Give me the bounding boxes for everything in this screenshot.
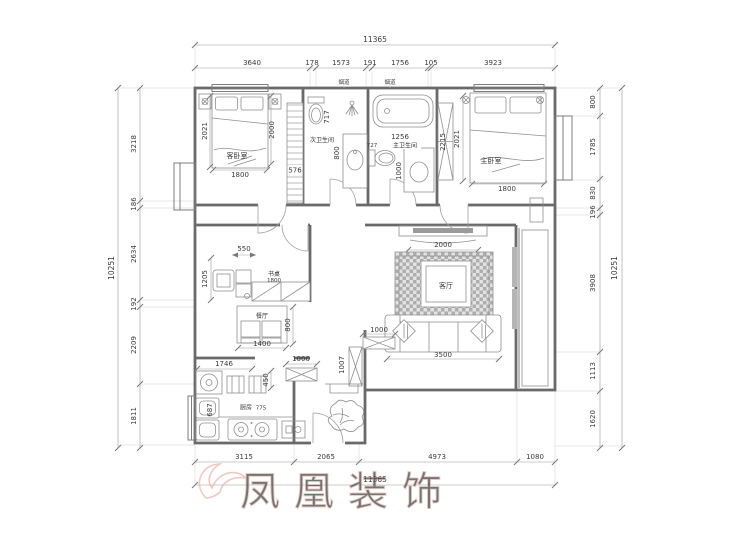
dim-top-total: 11365 [363,35,387,44]
tv [413,228,473,233]
watermark-swirl [199,464,246,498]
washing-machine [196,371,222,394]
stool [227,376,244,393]
dim-top-seg-2: 1573 [332,59,350,67]
dim-shoe-cabinet: 1000 [292,355,310,363]
dim-dining-d: 800 [284,318,292,331]
dim-desk-len: 1800 [267,278,281,284]
dim-top-seg-5: 105 [424,59,437,67]
desk-label: 书桌 [268,270,280,278]
toilet-tank [308,97,324,103]
dim-bottom-seg-1: 2065 [317,453,335,461]
desk-chair [213,270,234,291]
room-label-guest-bedroom: 客卧室 [227,151,248,160]
room-label-dining: 餐厅 [256,312,268,320]
dim-bath1-width: 1256 [391,133,409,141]
bay-window-left [174,163,195,210]
dim-left-seg-2: 2634 [130,245,138,263]
dim-top-seg-1: 178 [305,59,318,67]
basin-counter [404,148,434,192]
flues: 烟道 烟道 [338,78,396,88]
dim-right-seg-1: 1785 [589,138,597,156]
master-bathroom: 1256 主卫生间 727 1000 [367,95,434,192]
dim-right-seg-5: 1113 [589,362,597,380]
plant-icon [328,400,363,431]
dim-desk-col: 550 [237,245,250,253]
dim-bath2-basin: 800 [333,146,341,159]
flue-label-left: 烟道 [338,78,350,86]
dim-master-bed-len: 2021 [453,130,461,148]
dim-bottom-seg-3: 1080 [526,453,544,461]
dim-right-seg-2: 830 [589,186,597,199]
room-label-second-bathroom: 次卫生间 [310,136,334,144]
guest-bedroom: 2021 2000 1800 576 客卧室 [199,93,303,203]
dim-right-total: 10251 [610,256,619,280]
dim-desk-depth: 1205 [201,270,209,288]
dim-bath1-basin: 1000 [395,162,403,180]
dim-bath1-toilet: 727 [367,143,378,149]
dim-top-seg-0: 3640 [243,59,261,67]
dim-left-seg-3: 192 [130,297,138,310]
shower-icon [350,101,354,105]
dim-guest-wardrobe: 576 [288,167,302,175]
dim-top-seg-6: 3923 [484,59,502,67]
dim-kitchen-sink: 687 [206,403,214,416]
dim-left-seg-1: 186 [130,197,138,211]
dim-hall-cabinet: 1007 [338,356,346,374]
dim-left-seg-0: 3218 [130,135,138,153]
dim-right-seg-3: 196 [589,205,597,219]
dim-left-seg-5: 1811 [130,407,138,425]
watermark: 凤凰装饰 [199,464,456,515]
dim-guest-bed-right: 2000 [268,121,276,139]
room-label-kitchen: 厨房 [240,404,252,412]
dim-right-seg-0: 800 [589,95,597,108]
door-study [282,225,308,251]
dim-side-cabinet: 1000 [370,326,388,334]
dim-kitchen-stool: 450 [262,373,270,386]
room-label-master-bedroom: 主卧室 [481,156,502,165]
dim-left-seg-4: 2209 [130,336,138,354]
study: 550 1205 书桌 1800 [201,245,310,303]
door-guest-bedroom [258,205,286,233]
dim-kitchen-counter: 775 [256,406,267,412]
toilet-tank [369,150,375,166]
balcony-rail-1 [512,247,517,287]
guest-wardrobe [287,103,303,203]
balcony-rail-2 [512,289,517,329]
second-bathroom: 717 800 次卫生间 [307,97,367,188]
dim-top-seg-4: 1756 [391,59,409,67]
room-label-living: 客厅 [439,281,453,290]
dim-bottom-seg-2: 4973 [428,453,446,461]
dining: 餐厅 1400 800 [235,304,296,351]
basin-counter [343,134,367,188]
dim-master-wardrobe: 2215 [439,133,447,151]
flue-label-right: 烟道 [384,78,396,86]
balcony-cabinet [530,198,543,222]
dim-bottom-seg-0: 3115 [235,453,253,461]
door-entry [313,413,343,443]
watermark-text: 凤凰装饰 [240,469,456,515]
dim-right-seg-4: 3908 [589,274,597,292]
dim-master-bed-width: 1800 [498,185,516,193]
cabinet [236,284,251,297]
dim-guest-bed-width: 1800 [231,171,249,179]
floor-plan: 11365 3640 178 1573 191 1756 105 3923 10… [0,0,740,555]
dim-tv-wall: 2000 [434,241,452,249]
entry-opening [311,439,345,447]
dim-dining-w: 1400 [253,340,271,348]
cabinet [236,270,251,283]
dim-guest-bed-left: 2021 [201,122,209,140]
master-bed [470,93,546,183]
toilet [309,104,323,124]
balcony-floor [522,230,548,386]
dim-kitchen-top: 1746 [215,360,233,368]
dim-right-seg-6: 1620 [589,410,597,428]
stove [228,419,277,440]
dim-bath2-toilet: 717 [323,110,331,123]
dim-top-seg-3: 191 [363,59,376,67]
master-bedroom: 2215 2021 1800 主卧室 [438,93,547,193]
floor-lamp-icon [245,294,250,299]
room-label-master-bathroom: 主卫生间 [393,142,417,150]
dim-left-total: 10251 [107,256,116,280]
living-room: 2000 客厅 3500 1000 [360,226,502,362]
dim-sofa: 3500 [434,351,452,359]
